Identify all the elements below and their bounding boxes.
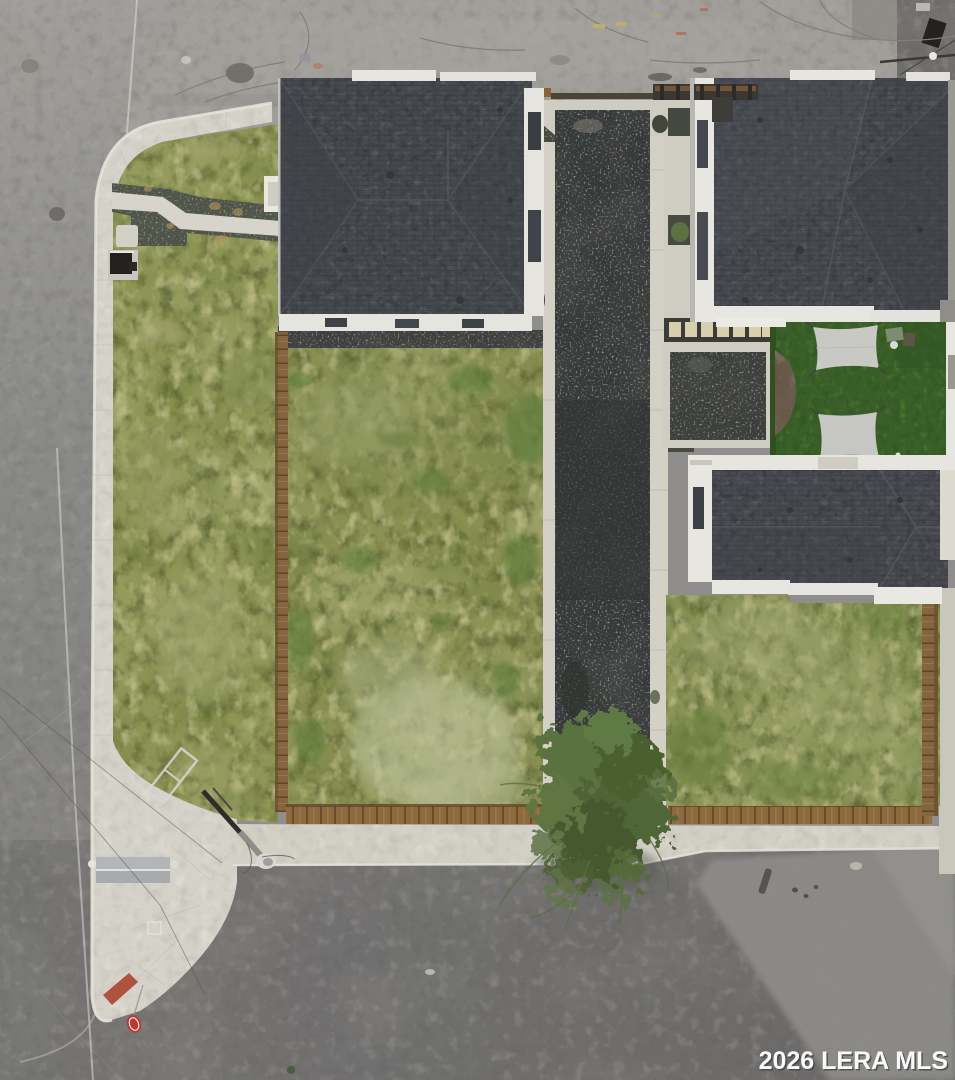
svg-text:2026 LERA MLS: 2026 LERA MLS — [759, 1047, 948, 1075]
